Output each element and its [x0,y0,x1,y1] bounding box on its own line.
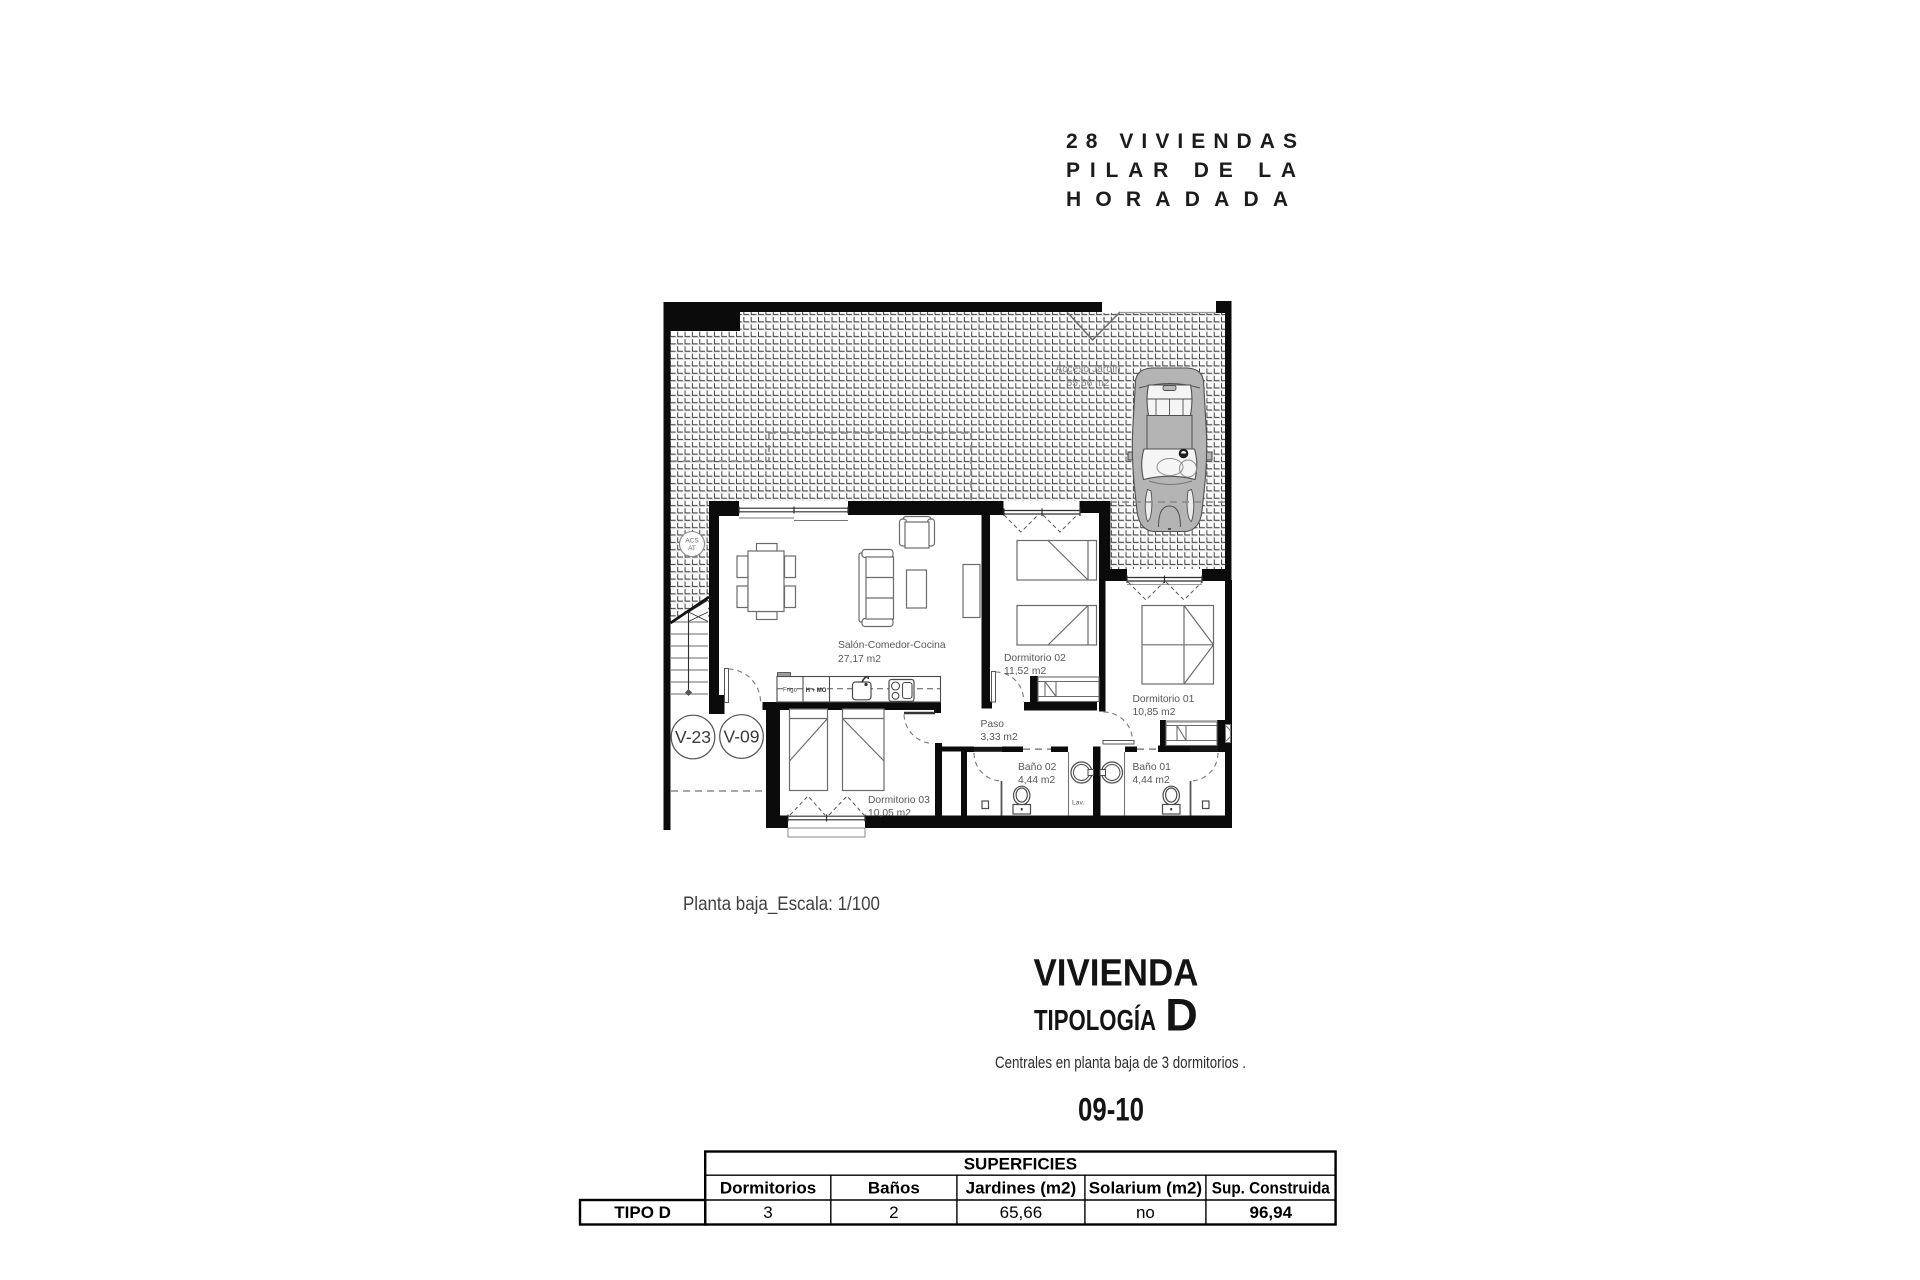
svg-text:VIVIENDA: VIVIENDA [1034,953,1199,995]
svg-text:Baños: Baños [868,1179,920,1198]
svg-text:4,44 m2: 4,44 m2 [1018,775,1055,786]
svg-text:Solarium (m2): Solarium (m2) [1089,1179,1202,1198]
svg-text:AT: AT [688,545,696,552]
svg-text:Planta baja_Escala: 1/100: Planta baja_Escala: 1/100 [683,893,880,915]
svg-text:TIPOLOGÍA: TIPOLOGÍA [1034,1003,1156,1037]
svg-text:Lav.: Lav. [1072,800,1084,807]
svg-text:Centrales en planta baja de 3: Centrales en planta baja de 3 dormitorio… [995,1053,1246,1072]
svg-text:ACS: ACS [685,538,699,545]
svg-text:65,66: 65,66 [1000,1203,1043,1222]
svg-text:27,17 m2: 27,17 m2 [838,654,881,665]
svg-text:Dormitorio 02: Dormitorio 02 [1004,653,1066,664]
svg-text:SUPERFICIES: SUPERFICIES [964,1155,1077,1174]
svg-text:Jardines (m2): Jardines (m2) [966,1179,1077,1198]
svg-text:11,52 m2: 11,52 m2 [1004,666,1046,677]
svg-text:Acceso Jardín: Acceso Jardín [1055,364,1121,375]
svg-text:Paso: Paso [981,719,1005,730]
svg-text:Salón-Comedor-Cocina: Salón-Comedor-Cocina [838,640,946,651]
svg-text:Frigo: Frigo [783,687,798,694]
svg-text:Sup. Construida: Sup. Construida [1212,1179,1330,1198]
svg-text:Dormitorio 01: Dormitorio 01 [1133,694,1195,705]
svg-text:09-10: 09-10 [1078,1092,1144,1128]
svg-text:Dormitorios: Dormitorios [720,1179,816,1198]
svg-text:TIPO D: TIPO D [614,1203,671,1222]
svg-text:10,85 m2: 10,85 m2 [1133,707,1176,718]
svg-text:Baño 01: Baño 01 [1133,762,1172,773]
svg-text:Dormitorio 03: Dormitorio 03 [868,795,930,806]
svg-text:96,94: 96,94 [1250,1203,1293,1222]
svg-text:4,44 m2: 4,44 m2 [1133,775,1170,786]
svg-text:Baño 02: Baño 02 [1018,762,1057,773]
svg-text:65,66 m2: 65,66 m2 [1067,378,1110,389]
svg-text:3,33 m2: 3,33 m2 [981,732,1018,743]
svg-text:10,05 m2: 10,05 m2 [868,808,911,819]
svg-text:3: 3 [763,1203,772,1222]
svg-text:28 VIVIENDAS: 28 VIVIENDAS [1066,130,1304,153]
svg-text:PILAR DE LA: PILAR DE LA [1066,159,1303,182]
svg-text:2: 2 [889,1203,898,1222]
svg-text:no: no [1136,1203,1155,1222]
svg-text:V-09: V-09 [724,727,760,747]
svg-text:V-23: V-23 [675,727,711,747]
svg-text:H + MO: H + MO [806,688,827,694]
svg-text:D: D [1165,990,1198,1041]
